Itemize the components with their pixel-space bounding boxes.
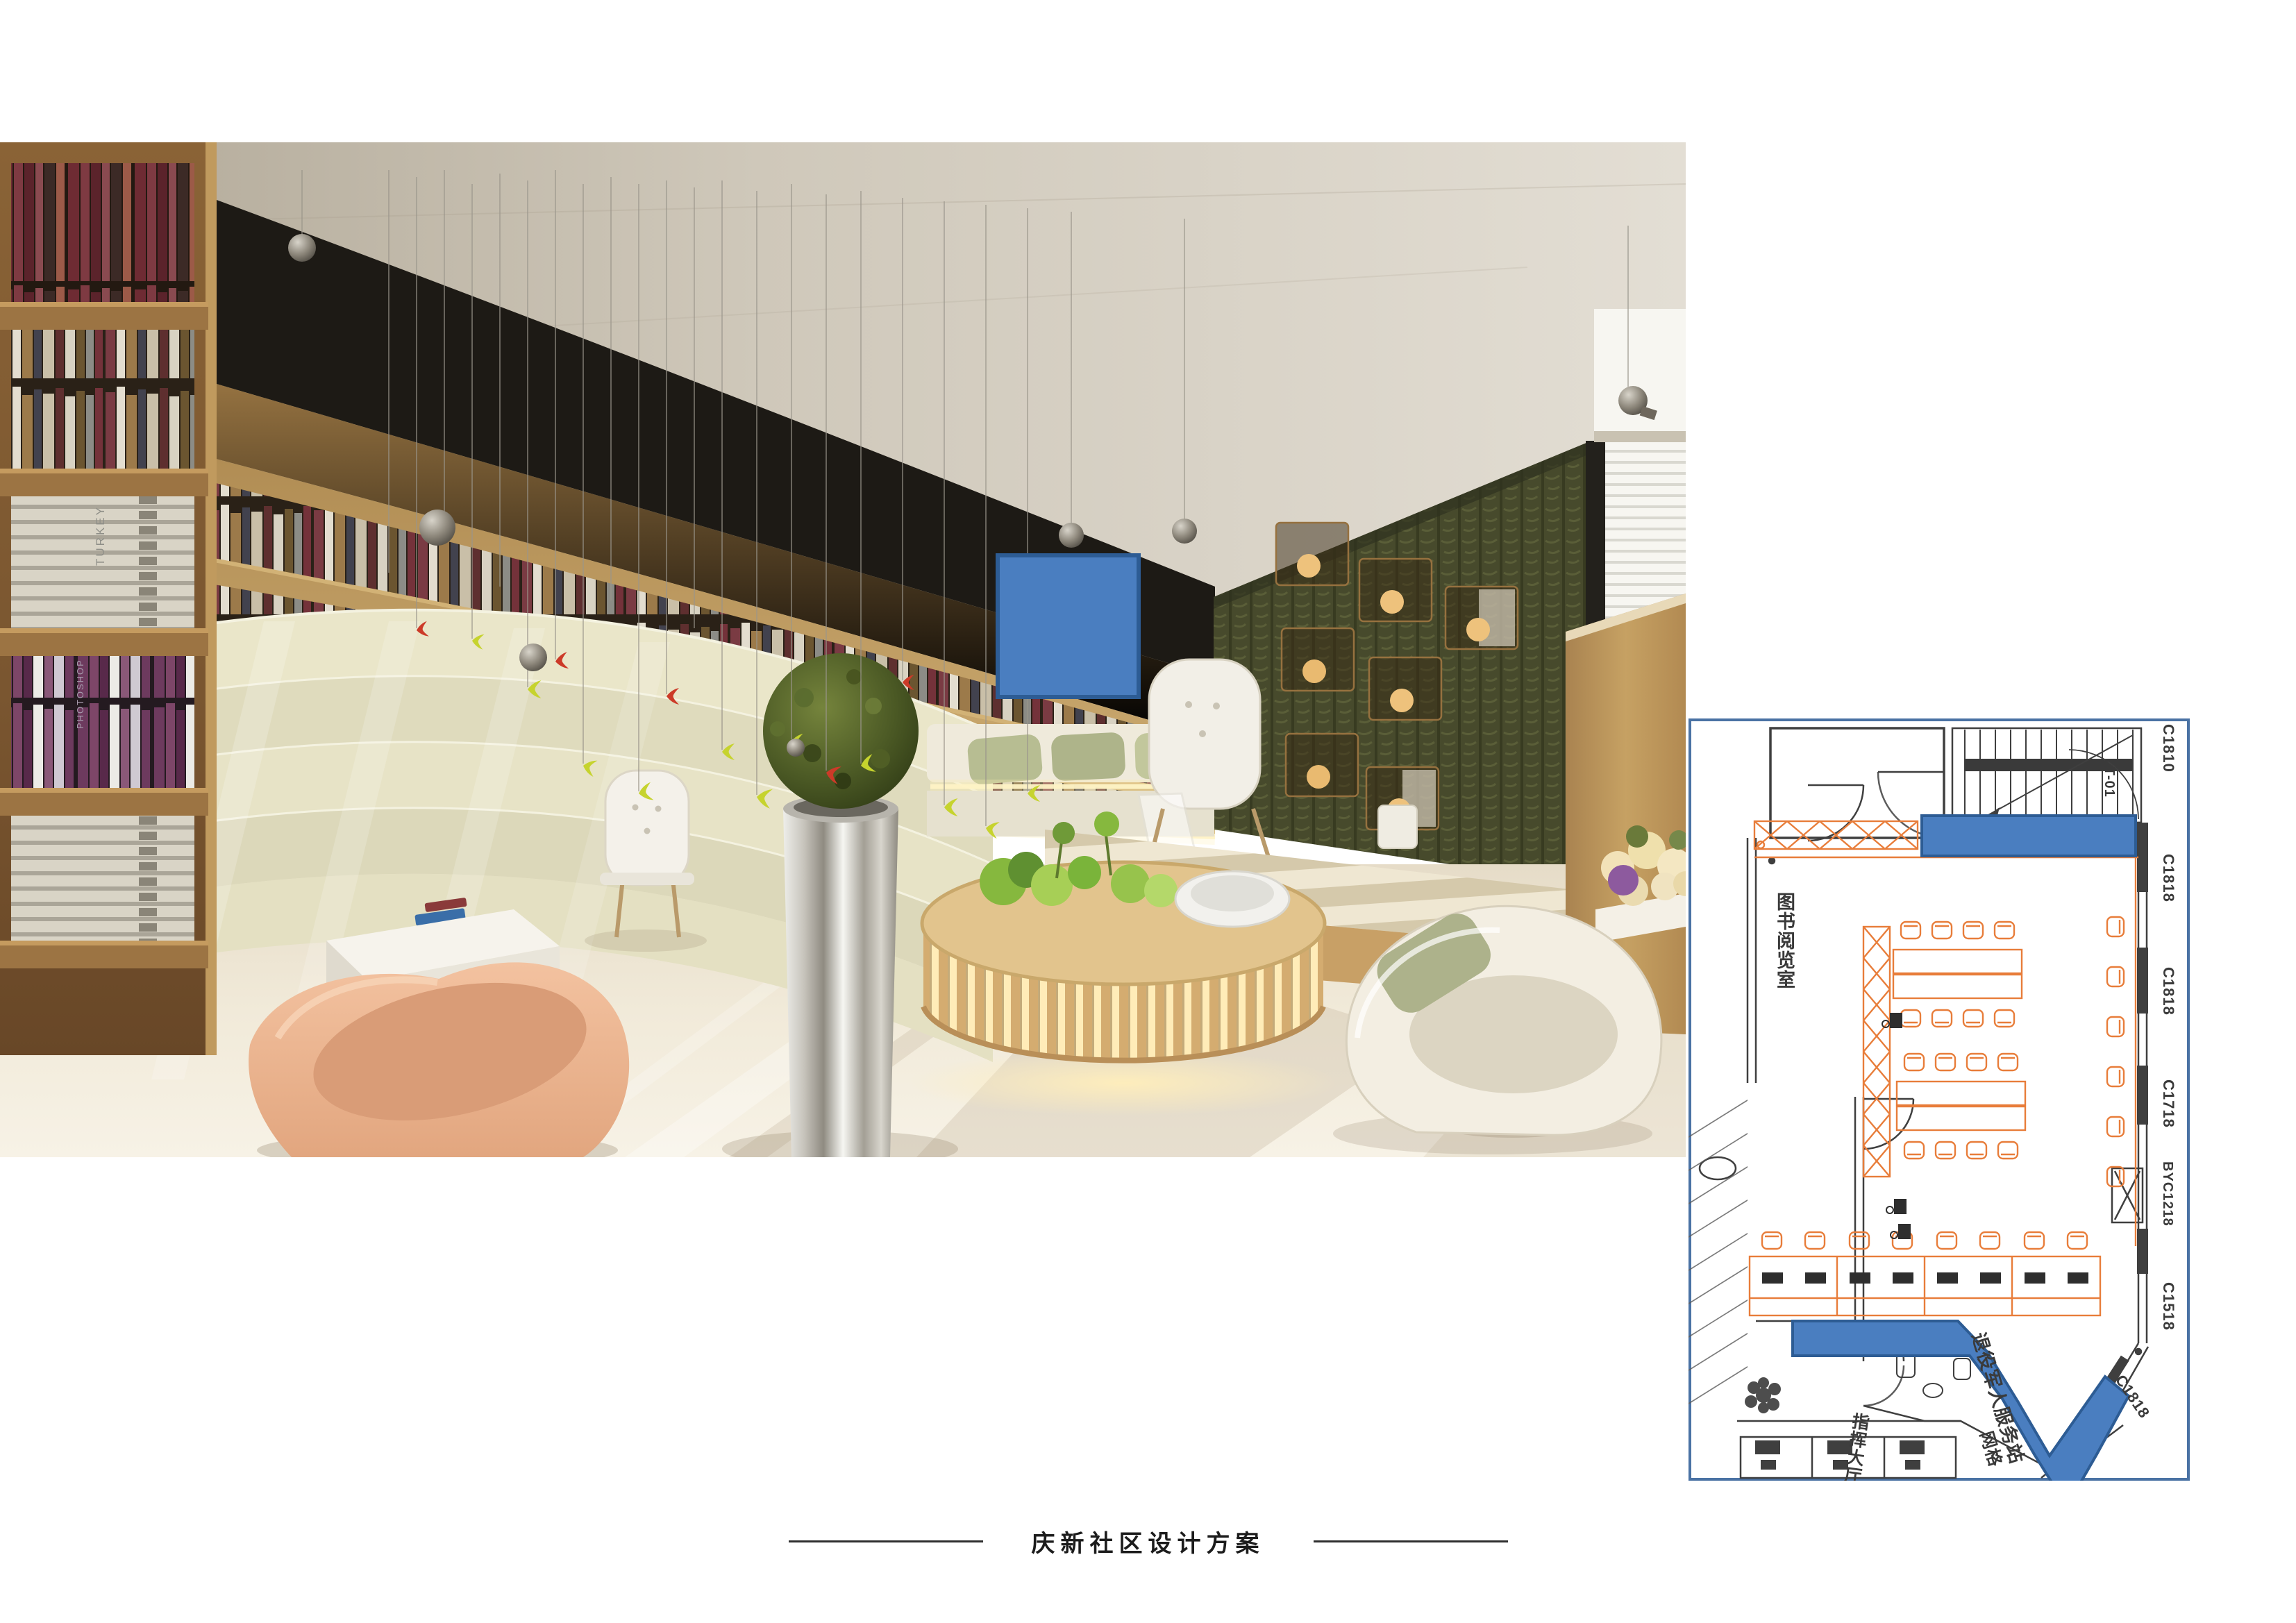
- page-title: 庆新社区设计方案: [1032, 1524, 1265, 1558]
- plan-room-label-reading: 图书阅览室: [1774, 892, 1795, 989]
- plan-window-label: C1810: [2160, 724, 2177, 773]
- book-spine-label: TURKEY: [94, 505, 107, 566]
- interior-rendering: TURKEY PHOTOSHOP: [0, 142, 1686, 1157]
- interior-rendering-canvas: TURKEY PHOTOSHOP: [0, 142, 1686, 1157]
- plan-window-label: C1818: [2160, 854, 2177, 902]
- left-bookshelf-column: TURKEY PHOTOSHOP: [0, 142, 217, 1055]
- plan-window-label: BYC1218: [2160, 1161, 2175, 1227]
- presentation-page: TURKEY PHOTOSHOP: [0, 0, 2296, 1623]
- plan-window-label: C1818: [2160, 967, 2177, 1016]
- plan-highlight-bar: [1922, 816, 2136, 856]
- footer: 庆新社区设计方案: [0, 1524, 2296, 1558]
- floor-plan-canvas: 图书阅览室 退役军人服务站 指挥大厅 网格 C1810 LT-01 C1818 …: [1689, 718, 2190, 1481]
- floor-plan: 图书阅览室 退役军人服务站 指挥大厅 网格 C1810 LT-01 C1818 …: [1689, 718, 2190, 1481]
- plan-window-label: C1518: [2160, 1282, 2177, 1331]
- footer-rule-left: [789, 1540, 983, 1542]
- plan-window-label: C1718: [2160, 1079, 2177, 1128]
- plan-window-label: LT-01: [2102, 759, 2117, 798]
- blue-highlight-square: [998, 555, 1139, 697]
- book-spine-label: PHOTOSHOP: [75, 659, 85, 729]
- footer-rule-right: [1314, 1540, 1508, 1542]
